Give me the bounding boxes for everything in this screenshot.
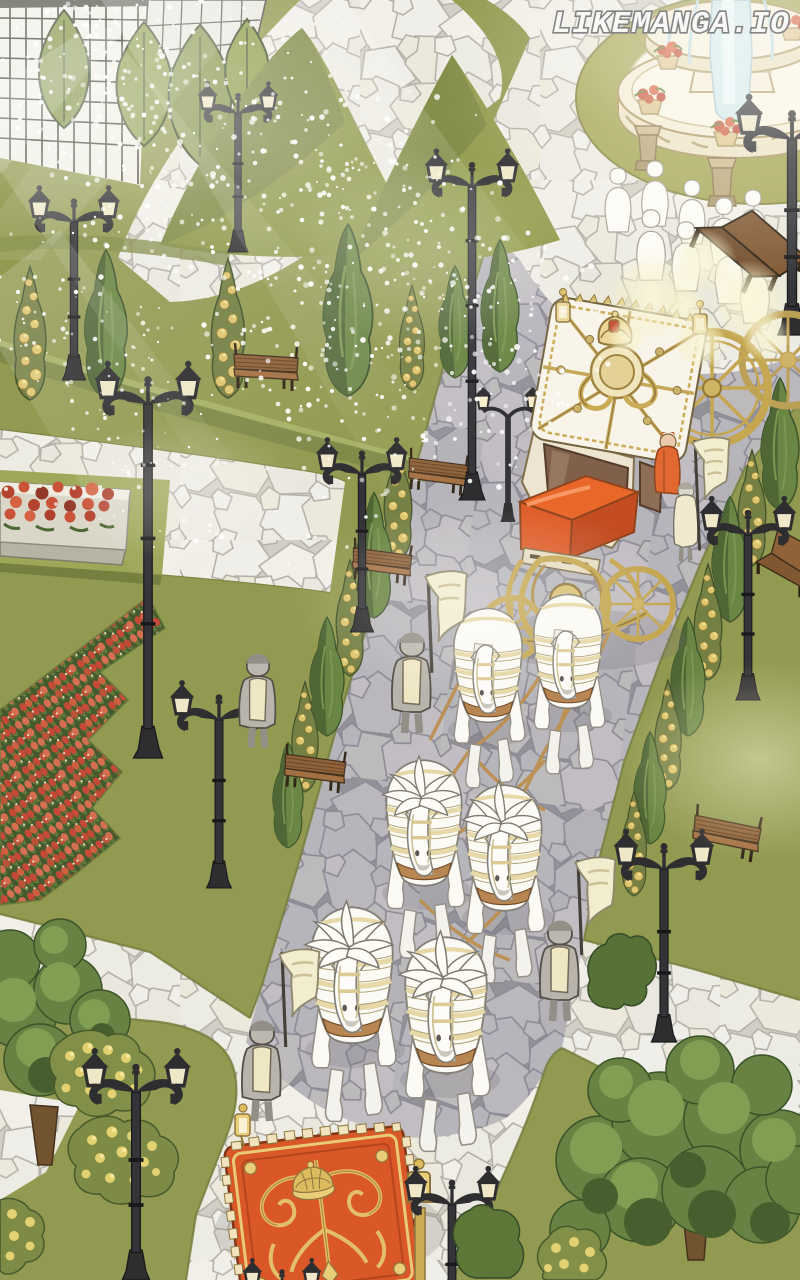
svg-text:LIKEMANGA.IO: LIKEMANGA.IO	[552, 7, 790, 42]
